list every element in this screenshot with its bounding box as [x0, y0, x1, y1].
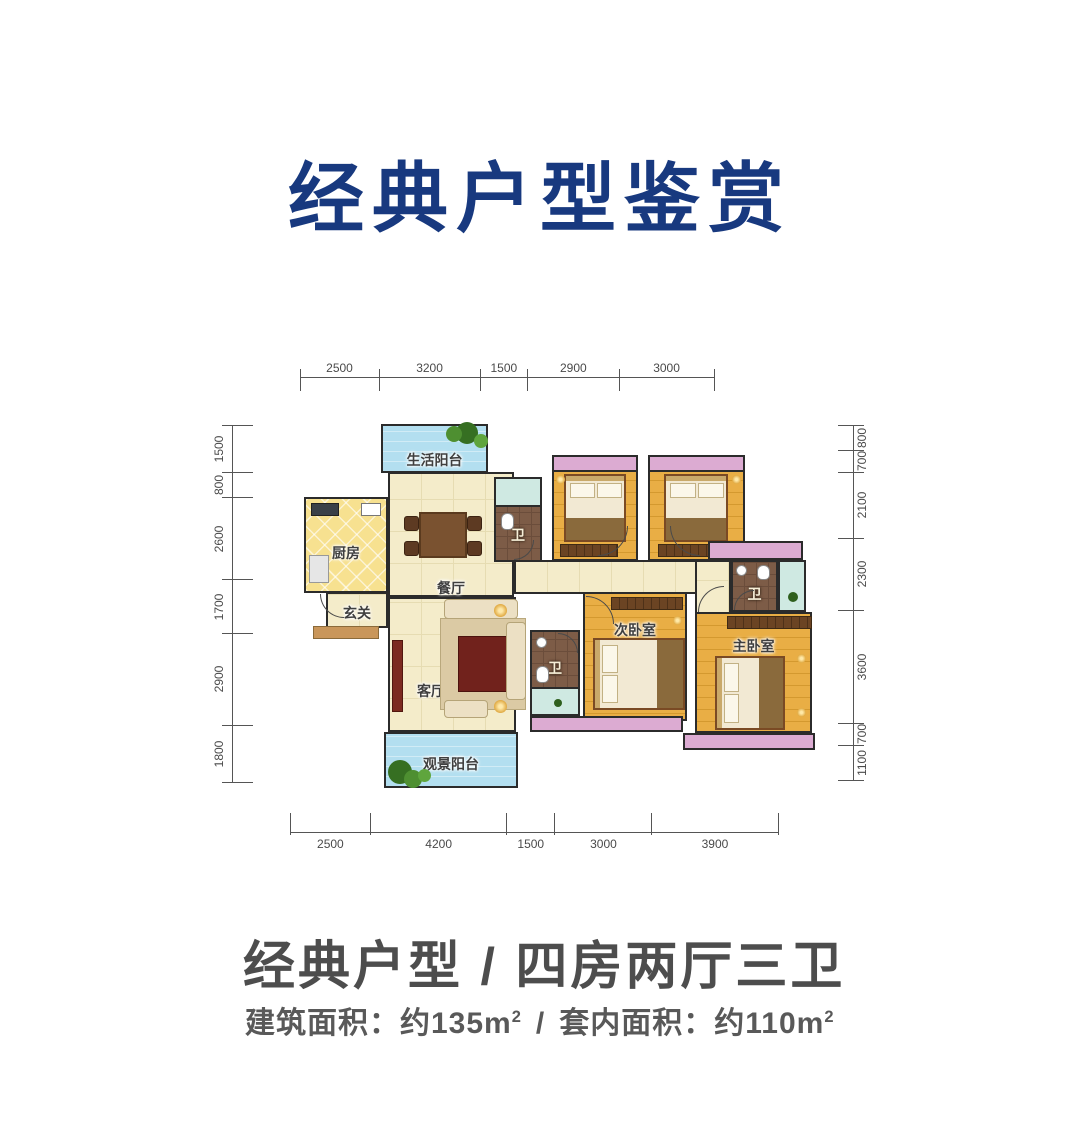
lamp-icon — [797, 708, 806, 717]
dimension-value: 2500 — [290, 837, 371, 851]
bay-window — [683, 733, 815, 750]
interior-area: 套内面积：约110m — [559, 1007, 824, 1040]
door-arc — [320, 594, 344, 618]
shower-drain — [554, 699, 562, 707]
dimension-value: 1500 — [507, 837, 555, 851]
dimension-value: 3000 — [555, 837, 652, 851]
dimension-segment: 800 — [211, 472, 257, 497]
room-kitchen: 厨房 — [304, 497, 388, 593]
room-label: 主卧室 — [697, 636, 810, 656]
bed — [593, 638, 685, 710]
dimension-value: 1500 — [480, 361, 527, 375]
interior-area-exponent: 2 — [824, 1008, 834, 1026]
dimension-segment: 2500 — [300, 361, 379, 393]
toilet — [757, 565, 770, 580]
sofa — [444, 700, 488, 718]
carpet — [458, 636, 508, 692]
dimension-segment: 1500 — [211, 425, 257, 472]
dimension-value: 800 — [855, 428, 869, 448]
room-master-bedroom: 主卧室 — [695, 612, 812, 733]
dimension-segment: 3900 — [652, 813, 778, 853]
building-area: 建筑面积：约135m — [245, 1007, 512, 1040]
dimension-segment: 3000 — [555, 813, 652, 853]
dimension-segment: 3200 — [379, 361, 480, 393]
dimension-segment: 1100 — [836, 745, 882, 780]
dimension-segment: 2100 — [836, 472, 882, 538]
dimension-segment: 2500 — [290, 813, 371, 853]
dimension-value: 700 — [855, 451, 869, 471]
bed — [715, 656, 785, 730]
lamp-icon — [673, 616, 682, 625]
plant-icon — [446, 426, 462, 442]
sink — [361, 503, 381, 516]
dimension-value: 2900 — [212, 666, 226, 693]
dimension-segment: 1500 — [507, 813, 555, 853]
dimension-segment: 4200 — [371, 813, 507, 853]
dimension-value: 1800 — [212, 740, 226, 767]
room-view-balcony: 观景阳台 — [384, 732, 518, 788]
dimension-value: 2600 — [212, 525, 226, 552]
building-area-exponent: 2 — [512, 1008, 522, 1026]
dimension-value: 3200 — [379, 361, 480, 375]
chair — [467, 541, 482, 556]
dimension-segment: 800 — [836, 425, 882, 450]
dimension-segment: 2900 — [211, 633, 257, 725]
dimension-line-top: 25003200150029003000 — [300, 361, 714, 393]
dimension-value: 2100 — [855, 492, 869, 519]
chair — [404, 516, 419, 531]
fridge — [309, 555, 329, 583]
page-title: 经典户型鉴赏 — [0, 152, 1080, 247]
dimension-value: 3900 — [652, 837, 778, 851]
plant-icon — [418, 769, 431, 782]
dimension-value: 800 — [212, 475, 226, 495]
room-label: 餐厅 — [390, 578, 512, 598]
dimension-segment: 3000 — [619, 361, 714, 393]
dimension-segment: 2300 — [836, 538, 882, 610]
bay-window — [708, 541, 803, 560]
sink — [536, 637, 547, 648]
lamp-icon — [732, 475, 741, 484]
tv-cabinet — [392, 640, 403, 712]
shower — [496, 479, 540, 507]
plant-icon — [788, 592, 798, 602]
dimension-value: 1700 — [212, 593, 226, 620]
dimension-value: 2900 — [528, 361, 620, 375]
dimension-value: 1500 — [212, 435, 226, 462]
dimension-value: 3000 — [619, 361, 714, 375]
lamp-icon — [494, 700, 507, 713]
sofa — [506, 622, 526, 700]
dimension-segment: 2900 — [528, 361, 620, 393]
dimension-value: 1100 — [855, 750, 869, 776]
area-info: 建筑面积：约135m2/套内面积：约110m2 — [245, 998, 835, 1042]
dimension-segment: 1800 — [211, 725, 257, 782]
plant-icon — [474, 434, 488, 448]
lamp-icon — [556, 475, 565, 484]
dimension-line-right: 8007002100230036007001100 — [836, 425, 882, 780]
dimension-value: 700 — [855, 724, 869, 744]
dining-table — [419, 512, 467, 558]
entry-porch — [313, 626, 379, 639]
shower-room — [778, 560, 806, 612]
lamp-icon — [494, 604, 507, 617]
dimension-value: 2300 — [855, 561, 869, 588]
toilet — [501, 513, 514, 530]
wardrobe — [727, 616, 812, 629]
dimension-segment: 1500 — [480, 361, 527, 393]
dimension-line-bottom: 25004200150030003900 — [290, 813, 778, 853]
bay-window — [648, 455, 745, 472]
dimension-segment: 1700 — [211, 580, 257, 634]
wardrobe — [611, 597, 683, 610]
dimension-value: 3600 — [855, 654, 869, 681]
dimension-value: 4200 — [371, 837, 507, 851]
poster: 经典户型鉴赏 25003200150029003000 250042001500… — [0, 0, 1080, 1127]
chair — [404, 541, 419, 556]
room-bedroom-left: 卧室 — [552, 455, 638, 561]
dimension-value: 2500 — [300, 361, 379, 375]
dimension-line-left: 15008002600170029001800 — [211, 425, 257, 782]
dimension-segment: 2600 — [211, 498, 257, 580]
lamp-icon — [797, 654, 806, 663]
sink — [736, 565, 747, 576]
plan-headline: 经典户型 / 四房两厅三卫 — [243, 924, 845, 999]
bay-window — [530, 716, 683, 732]
dimension-segment: 700 — [836, 450, 882, 472]
chair — [467, 516, 482, 531]
bay-window — [552, 455, 638, 472]
room-label: 生活阳台 — [383, 450, 486, 470]
room-living-balcony: 生活阳台 — [381, 424, 488, 473]
area-divider: / — [522, 1007, 559, 1040]
dimension-segment: 3600 — [836, 610, 882, 723]
toilet — [536, 666, 549, 683]
dimension-segment: 700 — [836, 723, 882, 745]
shower-room — [530, 687, 580, 716]
stove — [311, 503, 339, 516]
